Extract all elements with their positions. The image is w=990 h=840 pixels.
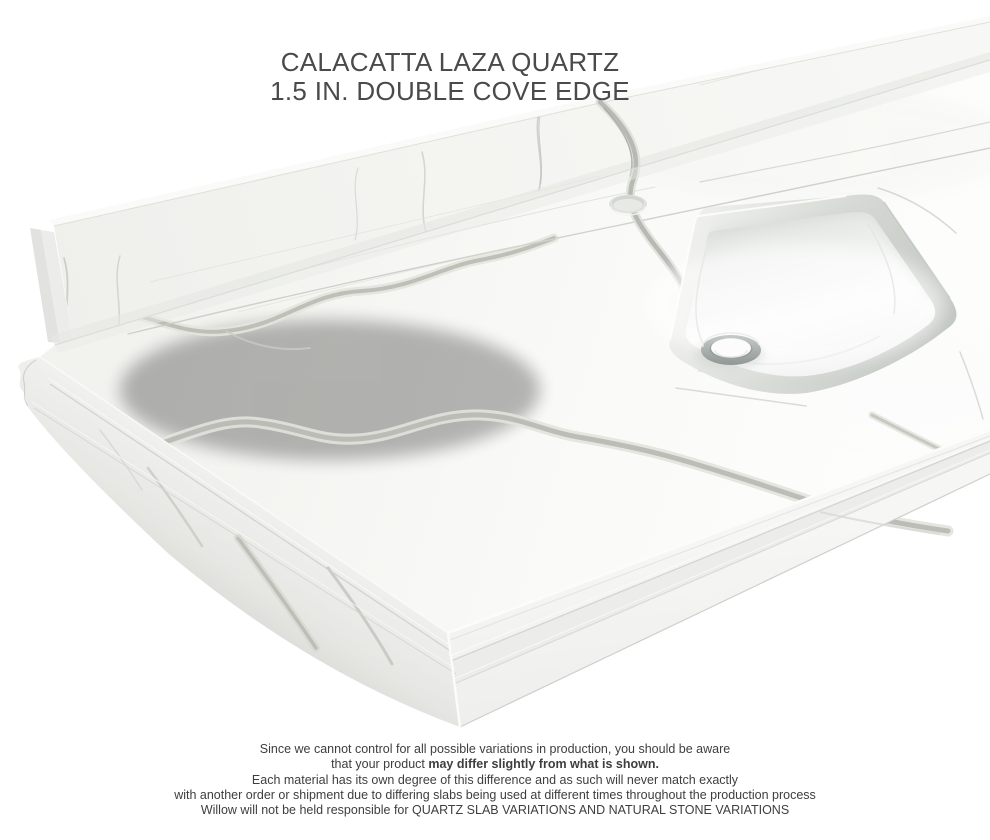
faucet-hole bbox=[609, 195, 647, 215]
product-page: CALACATTA LAZA QUARTZ 1.5 IN. DOUBLE COV… bbox=[0, 0, 990, 840]
disclaimer-line-2-normal: that your product bbox=[331, 757, 428, 771]
title-line-1: CALACATTA LAZA QUARTZ bbox=[0, 48, 900, 77]
disclaimer: Since we cannot control for all possible… bbox=[0, 742, 990, 818]
disclaimer-line-2: that your product may differ slightly fr… bbox=[0, 757, 990, 772]
disclaimer-line-1: Since we cannot control for all possible… bbox=[0, 742, 990, 757]
disclaimer-line-3: Each material has its own degree of this… bbox=[0, 773, 990, 788]
product-title: CALACATTA LAZA QUARTZ 1.5 IN. DOUBLE COV… bbox=[0, 48, 900, 105]
disclaimer-line-5: Willow will not be held responsible for … bbox=[0, 803, 990, 818]
product-photo bbox=[0, 0, 990, 840]
disclaimer-line-4: with another order or shipment due to di… bbox=[0, 788, 990, 803]
title-line-2: 1.5 IN. DOUBLE COVE EDGE bbox=[0, 77, 900, 106]
disclaimer-line-2-bold: may differ slightly from what is shown. bbox=[428, 757, 659, 771]
